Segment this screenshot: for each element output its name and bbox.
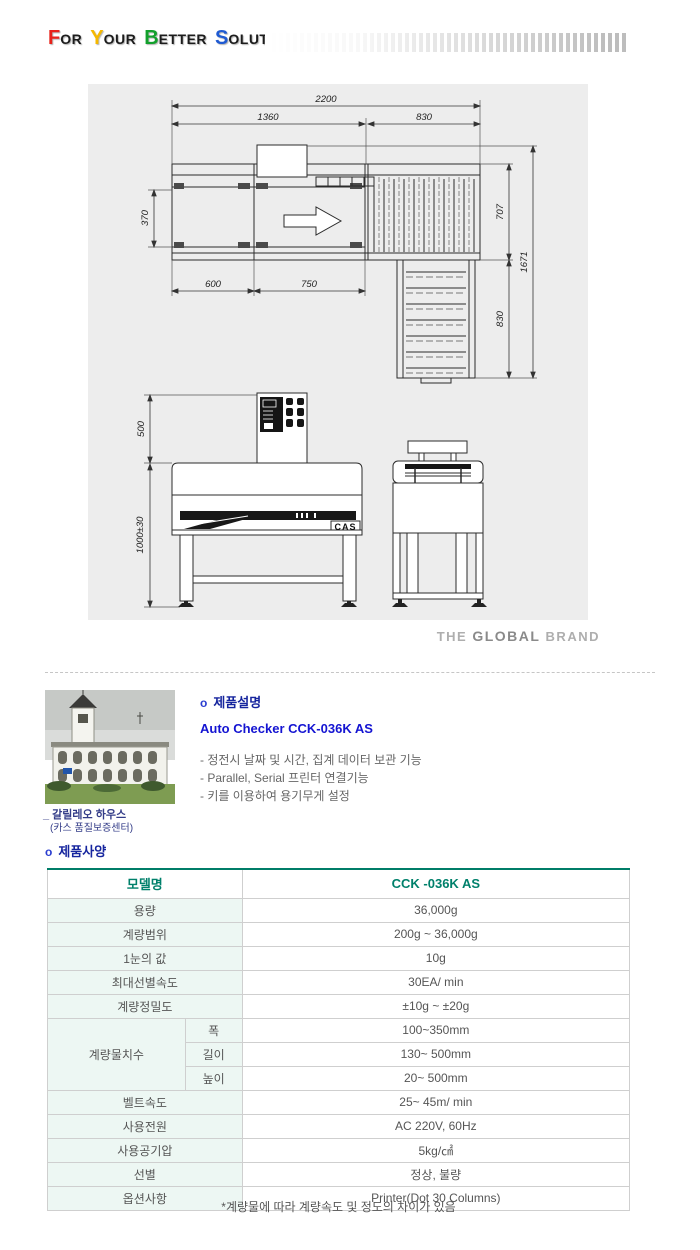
machine-leg: [343, 535, 356, 601]
row-label: 사용공기압: [48, 1138, 243, 1162]
row-label: 1눈의 값: [48, 946, 243, 970]
weigher-feet: [392, 599, 487, 607]
feature-item: - 정전시 날짜 및 시간, 집계 데이터 보관 기능: [200, 751, 422, 769]
weigh-head-box: [257, 145, 307, 177]
front-view-drawing: [172, 393, 487, 607]
row-value: 25~ 45m/ min: [242, 1090, 629, 1114]
section-heading-description: o제품설명: [200, 692, 261, 711]
row-value: 100~350mm: [242, 1018, 629, 1042]
feature-item: - Parallel, Serial 프린터 연결기능: [200, 769, 422, 787]
spec-table: 모델명 CCK -036K AS 용량36,000g 계량범위200g ~ 36…: [47, 868, 630, 1211]
product-datasheet-page: FORYOURBETTERSOLUTION: [0, 0, 700, 1250]
model-label-cell: 모델명: [48, 869, 243, 898]
row-value: 20~ 500mm: [242, 1066, 629, 1090]
machine-top-band: [172, 463, 362, 495]
product-model-title: Auto Checker CCK-036K AS: [200, 721, 373, 736]
size-group-label: 계량물치수: [48, 1018, 186, 1090]
table-row: 계량범위200g ~ 36,000g: [48, 922, 630, 946]
roller-section: [316, 177, 474, 254]
flow-direction-arrow: [284, 207, 341, 235]
cas-logo: CAS: [334, 522, 356, 532]
bullet-icon: o: [45, 845, 52, 859]
row-value: 10g: [242, 946, 629, 970]
global-brand-line: THE GLOBAL BRAND: [88, 628, 600, 644]
table-row: 1눈의 값10g: [48, 946, 630, 970]
technical-drawing-panel: 2200 1360 830 370 707 830 1671 600 750 5…: [88, 84, 588, 620]
table-row: 사용공기압5kg/㎠: [48, 1138, 630, 1162]
reject-conveyor: [397, 260, 475, 383]
dim-total-depth-label: 1671: [519, 251, 530, 272]
description-heading-text: 제품설명: [213, 695, 261, 710]
table-row: 용량36,000g: [48, 898, 630, 922]
dim-left-section-label: 1360: [257, 112, 279, 123]
row-label: 사용전원: [48, 1114, 243, 1138]
quality-center-photo: [45, 690, 175, 804]
dim-weigher-label: 750: [301, 279, 318, 290]
dim-right-section-label: 830: [416, 112, 433, 123]
brand-the: THE: [437, 629, 468, 644]
row-value: 130~ 500mm: [242, 1042, 629, 1066]
table-row: 벨트속도25~ 45m/ min: [48, 1090, 630, 1114]
building-photo-illustration: [45, 690, 175, 804]
cross-rail: [193, 576, 343, 583]
slogan-word-your: YOUR: [90, 31, 136, 48]
row-sublabel: 폭: [185, 1018, 242, 1042]
row-value: 200g ~ 36,000g: [242, 922, 629, 946]
table-row: 사용전원AC 220V, 60Hz: [48, 1114, 630, 1138]
row-label: 최대선별속도: [48, 970, 243, 994]
belt-brackets: [174, 183, 362, 248]
slogan-word-better: BETTER: [144, 31, 207, 48]
dim-total-width-label: 2200: [314, 94, 337, 105]
row-value: ±10g ~ ±20g: [242, 994, 629, 1018]
spec-header-row: 모델명 CCK -036K AS: [48, 869, 630, 898]
feature-list: - 정전시 날짜 및 시간, 집계 데이터 보관 기능 - Parallel, …: [200, 751, 422, 805]
section-heading-spec: o제품사양: [45, 841, 106, 860]
row-value: 30EA/ min: [242, 970, 629, 994]
table-row: 계량정밀도±10g ~ ±20g: [48, 994, 630, 1018]
machine-leg: [180, 535, 193, 601]
bullet-icon: o: [200, 696, 207, 710]
row-label: 계량범위: [48, 922, 243, 946]
table-row: 선별정상, 불량: [48, 1162, 630, 1186]
slogan-text: ETTER: [159, 31, 207, 47]
dim-reject-length-label: 830: [495, 310, 506, 327]
table-row: 최대선별속도30EA/ min: [48, 970, 630, 994]
weigher-unit: [392, 441, 487, 607]
row-value: 5kg/㎠: [242, 1138, 629, 1162]
row-label: 용량: [48, 898, 243, 922]
row-label: 선별: [48, 1162, 243, 1186]
machine-stripe: [180, 511, 356, 520]
slogan-text: OR: [60, 31, 82, 47]
dim-work-height-label: 1000±30: [135, 516, 146, 554]
dim-right-depth-label: 707: [495, 203, 506, 220]
row-value: 36,000g: [242, 898, 629, 922]
technical-drawing: 2200 1360 830 370 707 830 1671 600 750 5…: [88, 84, 588, 620]
model-value-cell: CCK -036K AS: [242, 869, 629, 898]
spec-heading-text: 제품사양: [58, 844, 106, 859]
machine-feet: [178, 601, 357, 607]
dim-panel-height-label: 500: [136, 420, 147, 437]
slogan-word-for: FOR: [48, 31, 82, 48]
dashed-divider: [45, 672, 655, 673]
slogan-letter-y: Y: [90, 27, 103, 49]
row-sublabel: 높이: [185, 1066, 242, 1090]
row-label: 계량정밀도: [48, 994, 243, 1018]
photo-caption-subtitle: (카스 품질보증센터): [50, 819, 133, 834]
barcode-decoration: [265, 33, 628, 52]
row-sublabel: 길이: [185, 1042, 242, 1066]
table-footnote: *계량물에 따라 계량속도 및 정도의 차이가 있음: [47, 1198, 630, 1215]
top-view-drawing: [172, 145, 480, 383]
dim-belt-width-label: 370: [140, 209, 151, 226]
brand-global: GLOBAL: [472, 628, 540, 644]
slogan-letter-f: F: [48, 27, 60, 49]
row-value: 정상, 불량: [242, 1162, 629, 1186]
row-value: AC 220V, 60Hz: [242, 1114, 629, 1138]
slogan-text: OUR: [104, 31, 137, 47]
feature-item: - 키를 이용하여 용기무게 설정: [200, 787, 422, 805]
table-row: 계량물치수 폭 100~350mm: [48, 1018, 630, 1042]
row-label: 벨트속도: [48, 1090, 243, 1114]
slogan-letter-b: B: [144, 27, 158, 49]
dim-infeed-label: 600: [205, 279, 222, 290]
brand-brand: BRAND: [546, 629, 600, 644]
slogan-letter-s: S: [215, 27, 228, 49]
